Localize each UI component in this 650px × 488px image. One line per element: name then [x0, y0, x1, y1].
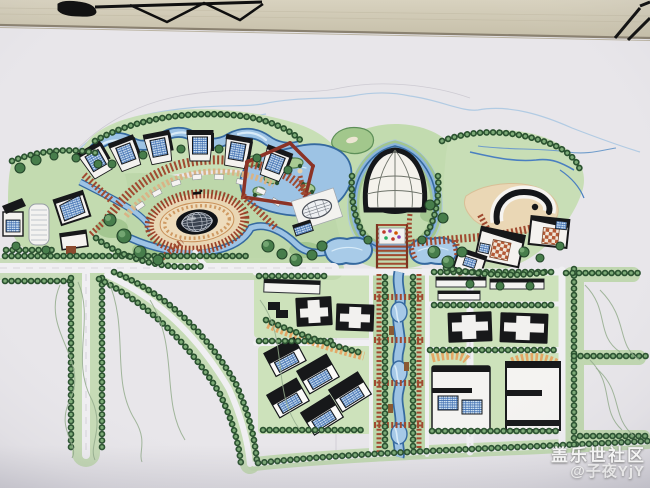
watermark-username: @子夜YjY	[570, 460, 645, 481]
photo-vignette	[0, 0, 650, 488]
photo-of-hand-drawn-masterplan: 盖乐世社区 @子夜YjY	[0, 0, 650, 488]
masterplan-drawing	[0, 0, 650, 488]
